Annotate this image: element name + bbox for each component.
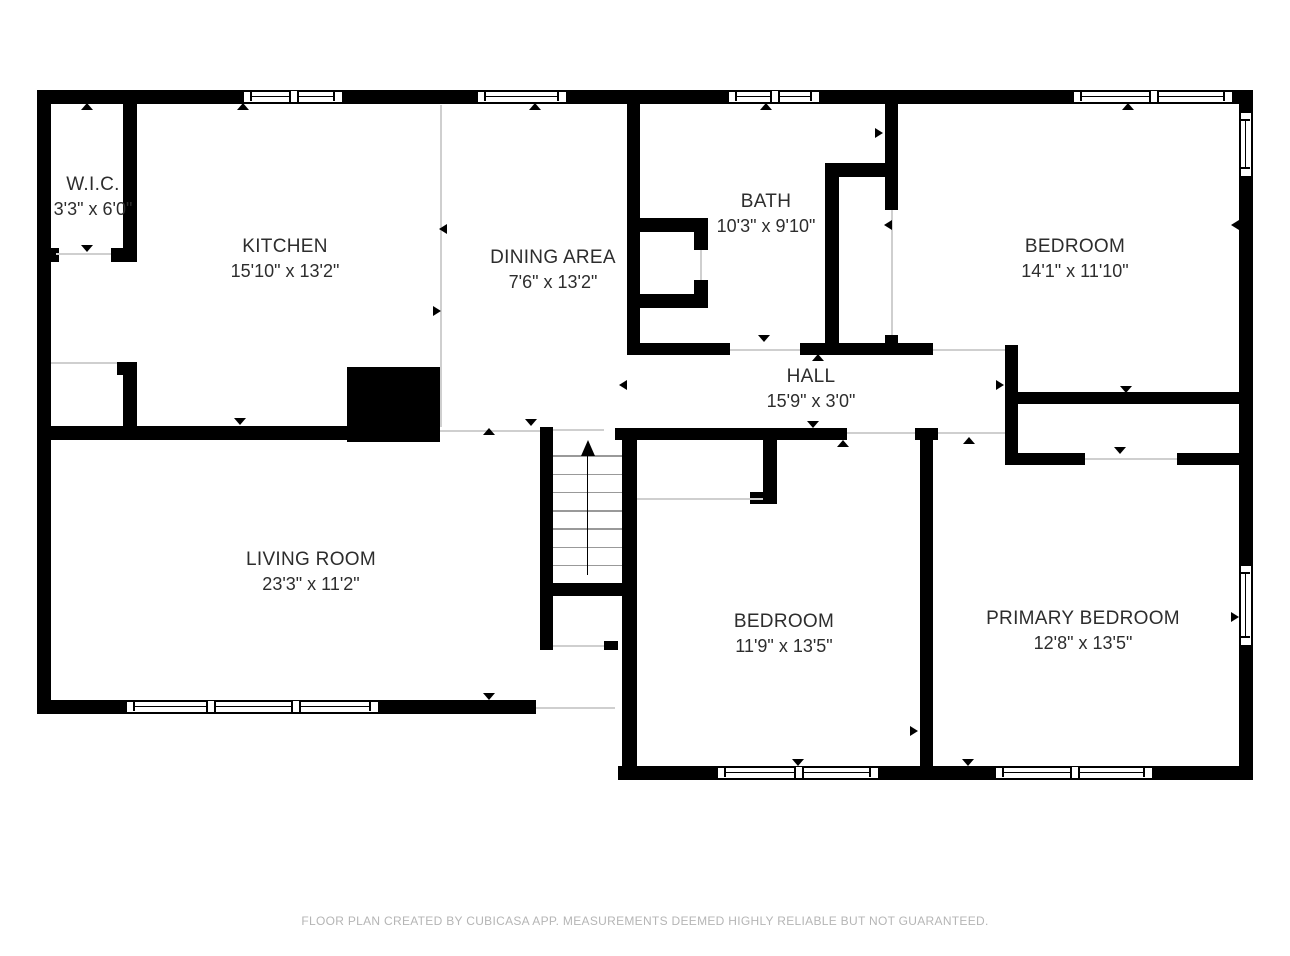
wall: [615, 428, 847, 440]
window-divider: [794, 767, 804, 778]
stairs-up-arrow: [587, 454, 589, 575]
window: [1073, 91, 1233, 103]
room-dimensions: 10'3" x 9'10": [717, 215, 816, 238]
wall: [825, 163, 839, 355]
opening-marker: [996, 380, 1004, 390]
wall: [1177, 453, 1240, 465]
opening-marker: [910, 726, 918, 736]
floor-plan: W.I.C. 3'3" x 6'0" KITCHEN 15'10" x 13'2…: [0, 0, 1290, 956]
room-label-bedroom-bottom: BEDROOM 11'9" x 13'5": [734, 610, 834, 658]
wall: [627, 343, 730, 355]
open-boundary: [440, 105, 442, 427]
opening-marker: [1231, 220, 1239, 230]
wall: [885, 104, 898, 210]
room-dimensions: 12'8" x 13'5": [986, 632, 1180, 655]
opening-marker: [760, 103, 772, 110]
window: [126, 701, 379, 713]
opening-marker: [483, 693, 495, 700]
open-boundary: [56, 253, 111, 255]
wall: [1005, 345, 1018, 465]
room-dimensions: 15'10" x 13'2": [231, 260, 340, 283]
wall: [604, 641, 618, 650]
open-boundary: [730, 349, 800, 351]
room-label-bedroom-top: BEDROOM 14'1" x 11'10": [1021, 235, 1128, 283]
room-dimensions: 23'3" x 11'2": [246, 573, 376, 596]
room-label-wic: W.I.C. 3'3" x 6'0": [54, 173, 133, 221]
opening-marker: [925, 612, 933, 622]
wall: [1239, 90, 1253, 780]
opening-marker: [483, 428, 495, 435]
open-boundary: [1085, 458, 1177, 460]
wall: [37, 90, 51, 714]
opening-marker: [81, 245, 93, 252]
opening-marker: [43, 666, 51, 676]
room-label-dining-area: DINING AREA 7'6" x 13'2": [490, 246, 616, 294]
window-divider: [1070, 767, 1080, 778]
room-name: BEDROOM: [734, 610, 834, 635]
opening-marker: [963, 437, 975, 444]
window-pane-line: [133, 706, 371, 708]
wall: [117, 362, 137, 375]
window-divider: [206, 701, 216, 712]
wall: [694, 230, 708, 250]
opening-marker: [619, 380, 627, 390]
window-divider: [291, 701, 301, 712]
window: [477, 91, 567, 103]
opening-marker: [81, 103, 93, 110]
open-boundary: [700, 250, 702, 280]
open-boundary: [51, 362, 117, 364]
wall: [37, 426, 347, 440]
wall: [51, 248, 59, 262]
window-pane-line: [484, 96, 559, 98]
room-label-bath: BATH 10'3" x 9'10": [717, 190, 816, 238]
window: [995, 767, 1153, 779]
room-label-kitchen: KITCHEN 15'10" x 13'2": [231, 235, 340, 283]
window: [717, 767, 879, 779]
opening-marker: [807, 421, 819, 428]
window: [728, 91, 820, 103]
room-dimensions: 14'1" x 11'10": [1021, 260, 1128, 283]
opening-marker: [43, 306, 51, 316]
wall: [694, 280, 708, 302]
room-name: W.I.C.: [54, 173, 133, 198]
wall: [885, 335, 898, 348]
opening-marker: [875, 128, 883, 138]
opening-marker: [758, 335, 770, 342]
room-label-living-room: LIVING ROOM 23'3" x 11'2": [246, 548, 376, 596]
opening-marker: [1120, 386, 1132, 393]
wall: [920, 437, 933, 768]
window: [243, 91, 343, 103]
room-name: DINING AREA: [490, 246, 616, 271]
room-dimensions: 7'6" x 13'2": [490, 271, 616, 294]
open-boundary: [536, 707, 615, 709]
room-dimensions: 11'9" x 13'5": [734, 635, 834, 658]
open-boundary: [933, 349, 1005, 351]
opening-marker: [525, 419, 537, 426]
window-pane-line: [1245, 119, 1247, 169]
room-name: PRIMARY BEDROOM: [986, 607, 1180, 632]
opening-marker: [237, 103, 249, 110]
wall: [540, 427, 553, 650]
room-name: KITCHEN: [231, 235, 340, 260]
window-divider: [770, 91, 780, 102]
room-label-primary-bedroom: PRIMARY BEDROOM 12'8" x 13'5": [986, 607, 1180, 655]
opening-marker: [1231, 612, 1239, 622]
room-name: BATH: [717, 190, 816, 215]
room-name: HALL: [767, 365, 856, 390]
wall: [1018, 392, 1240, 404]
open-boundary: [938, 432, 1005, 434]
open-boundary: [553, 645, 604, 647]
wall: [111, 248, 137, 262]
stairs-up-arrow-head: [581, 440, 595, 456]
window: [1240, 565, 1252, 646]
room-name: LIVING ROOM: [246, 548, 376, 573]
room-label-hall: HALL 15'9" x 3'0": [767, 365, 856, 413]
opening-marker: [812, 354, 824, 361]
opening-marker: [439, 224, 447, 234]
opening-marker: [625, 726, 633, 736]
wall: [37, 90, 1253, 104]
open-boundary: [847, 432, 915, 434]
window-divider: [289, 91, 299, 102]
wall: [540, 583, 635, 596]
opening-marker: [792, 759, 804, 766]
opening-marker: [962, 759, 974, 766]
opening-marker: [234, 418, 246, 425]
opening-marker: [630, 134, 638, 144]
room-dimensions: 15'9" x 3'0": [767, 390, 856, 413]
room-name: BEDROOM: [1021, 235, 1128, 260]
window-divider: [1149, 91, 1159, 102]
opening-marker: [1122, 103, 1134, 110]
opening-marker: [433, 306, 441, 316]
opening-marker: [884, 220, 892, 230]
window-pane-line: [1245, 572, 1247, 638]
open-boundary: [637, 498, 763, 500]
window: [1240, 112, 1252, 177]
wall: [347, 367, 440, 442]
disclaimer-text: FLOOR PLAN CREATED BY CUBICASA APP. MEAS…: [0, 914, 1290, 928]
wall: [618, 766, 1253, 780]
opening-marker: [837, 440, 849, 447]
wall: [1005, 453, 1085, 465]
opening-marker: [1114, 447, 1126, 454]
open-boundary: [553, 429, 604, 431]
room-dimensions: 3'3" x 6'0": [54, 198, 133, 221]
opening-marker: [529, 103, 541, 110]
